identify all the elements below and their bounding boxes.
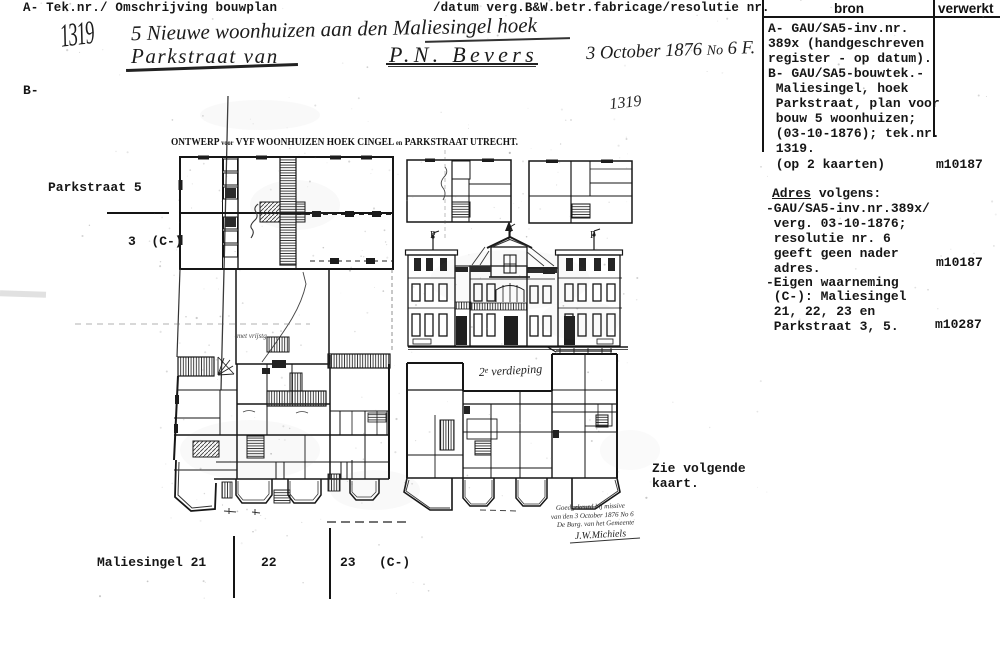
svg-text:2e verdieping: 2e verdieping xyxy=(478,362,542,379)
svg-text:met vrijstg: met vrijstg xyxy=(237,332,267,340)
svg-text:De Burg. van het Gemeente: De Burg. van het Gemeente xyxy=(556,518,635,529)
svg-text:ONTWERP voor VYF WOONHUIZEN HO: ONTWERP voor VYF WOONHUIZEN HOEK CINGEL … xyxy=(171,137,518,148)
